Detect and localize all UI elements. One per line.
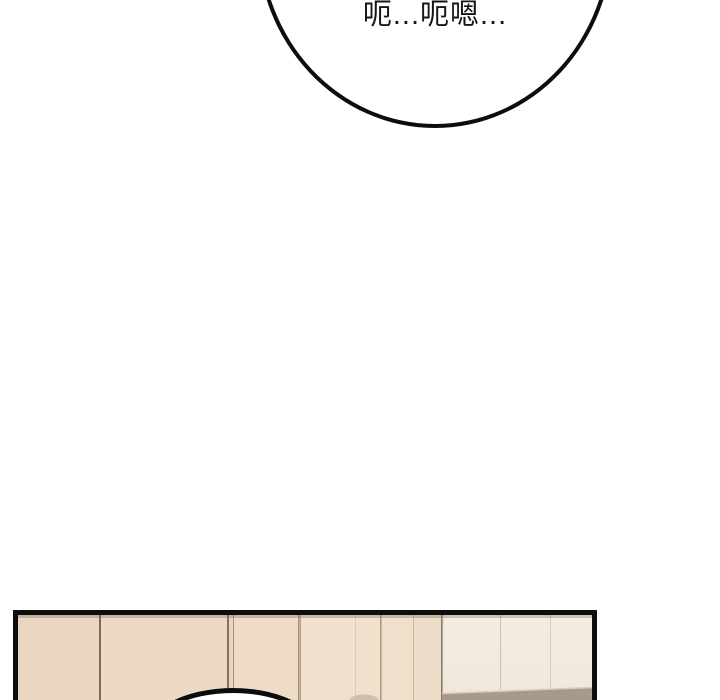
panel-interior xyxy=(18,615,592,700)
floor-graphics xyxy=(18,615,592,700)
floor-band xyxy=(442,688,592,700)
shadow-wedge xyxy=(349,695,379,700)
comic-page: 呃...呃嗯... xyxy=(0,0,720,700)
speech-bubble-top-text: 呃...呃嗯... xyxy=(257,0,613,31)
comic-panel xyxy=(13,610,597,700)
